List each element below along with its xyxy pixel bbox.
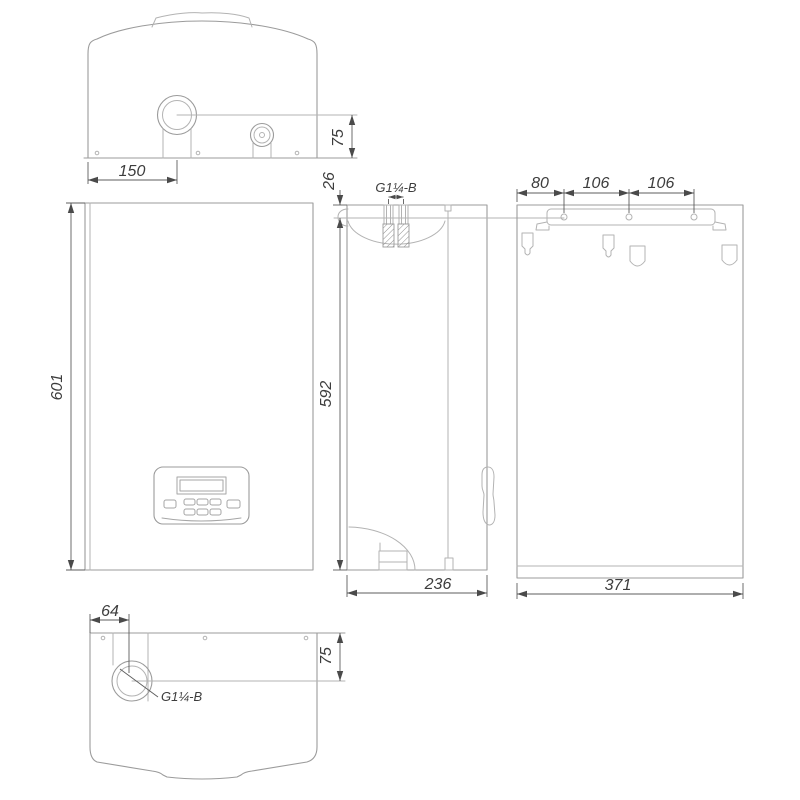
bracket-hole — [561, 214, 567, 220]
top-cover-bump — [152, 13, 252, 27]
screw-mark — [95, 151, 99, 155]
panel-button-left — [164, 500, 176, 508]
bracket-hole — [691, 214, 697, 220]
side-view — [334, 205, 564, 570]
back-view — [517, 205, 743, 578]
keyhole-slot — [603, 235, 614, 257]
panel-button — [197, 499, 208, 505]
dim-64-label: 64 — [101, 603, 119, 620]
side-clip-handle — [482, 467, 495, 525]
dim-371-label: 371 — [605, 577, 632, 594]
screw-mark — [101, 636, 105, 640]
top-view-outline — [88, 21, 317, 158]
bracket-hole — [626, 214, 632, 220]
dim-75-bottom-label: 75 — [318, 647, 335, 665]
top-view — [84, 13, 357, 158]
mounting-bracket — [536, 209, 726, 230]
rear-panel-top-tab — [445, 205, 451, 211]
round-slot — [722, 245, 737, 265]
screw-mark — [304, 636, 308, 640]
rear-panel-foot — [445, 558, 453, 570]
bottom-front-curve — [349, 527, 415, 570]
connection-stud-right — [398, 205, 409, 247]
panel-button — [197, 509, 208, 515]
panel-button — [210, 499, 221, 505]
air-intake-center-dot — [260, 133, 265, 138]
panel-button — [184, 509, 195, 515]
bottom-view — [90, 633, 345, 779]
connection-label-bottom: G1¼-B — [161, 689, 203, 704]
dim-106-b-label: 106 — [648, 175, 675, 192]
air-intake-inner-circle — [254, 127, 270, 143]
panel-button-right — [227, 500, 240, 508]
side-view-outline — [347, 205, 487, 570]
connection-label-side: G1¼-B — [375, 180, 417, 195]
siphon-assembly — [379, 543, 407, 570]
dim-592-label: 592 — [318, 381, 335, 408]
boiler-dimension-drawing: 150 75 601 — [0, 0, 800, 800]
dim-601-label: 601 — [49, 374, 66, 401]
keyhole-slot — [522, 233, 533, 255]
dim-75-top-label: 75 — [330, 129, 347, 147]
control-panel-lower-curve — [162, 518, 241, 521]
front-view-dimensions: 601 — [49, 203, 85, 570]
front-view — [85, 203, 313, 570]
dim-106-a-label: 106 — [583, 175, 610, 192]
screw-mark — [295, 151, 299, 155]
round-slot — [630, 246, 645, 266]
boiler-dimension-drawing-page: 150 75 601 — [0, 0, 800, 800]
dim-236-label: 236 — [424, 576, 452, 593]
screw-mark — [196, 151, 200, 155]
bottom-view-outline — [90, 633, 317, 779]
dim-80-label: 80 — [531, 175, 549, 192]
panel-button — [210, 509, 221, 515]
back-view-dimensions: 80 106 106 371 — [517, 175, 743, 599]
control-panel — [154, 467, 249, 524]
lcd-display-inner — [180, 480, 223, 491]
top-dome-curve — [348, 221, 445, 244]
dim-26-label: 26 — [321, 172, 338, 191]
connection-stud-left — [383, 205, 394, 247]
dim-150-label: 150 — [119, 163, 146, 180]
bottom-view-dimensions: 64 75 G1¼-B — [90, 603, 340, 704]
panel-button — [184, 499, 195, 505]
screw-mark — [203, 636, 207, 640]
top-view-dimensions: 150 75 — [88, 115, 352, 184]
